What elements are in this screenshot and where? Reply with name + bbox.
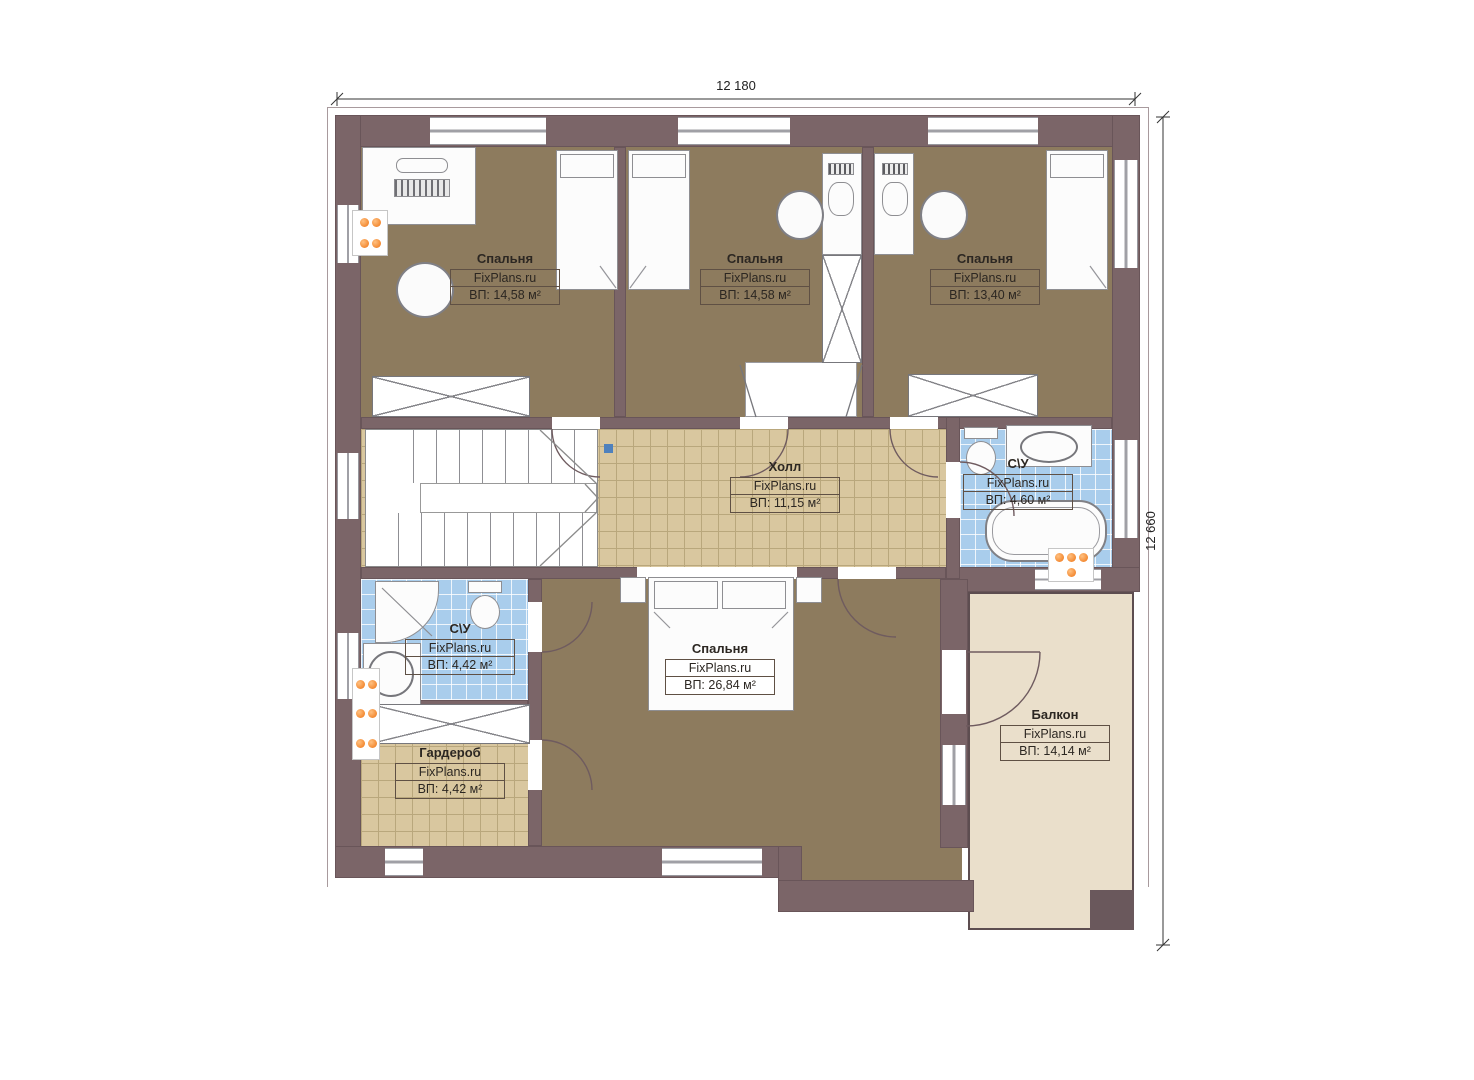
window-right-2 [1114,440,1138,538]
room-area: ВП: 11,15 м² [731,495,839,511]
door-niche-bedrooms-2-3 [745,362,857,417]
room-label-bathroom-right: С\У FixPlans.ru ВП: 4,60 м² [963,457,1073,510]
room-brand: FixPlans.ru [1001,726,1109,743]
room-brand: FixPlans.ru [396,764,504,781]
printer-tray-icon [394,179,450,197]
door-gap-bedroom-2 [740,417,788,429]
wall-bedroom2-3 [862,147,874,417]
door-gap-wardrobe [528,740,542,790]
room-brand: FixPlans.ru [931,270,1039,287]
door-gap-bathroom-right [946,462,960,518]
pillow-bedroom-3 [1050,154,1104,178]
window-top-2 [678,117,790,145]
pillow-bedroom-1 [560,154,614,178]
toilet-tank-right [964,427,998,439]
room-label-wardrobe: Гардероб FixPlans.ru ВП: 4,42 м² [395,746,505,799]
room-brand: FixPlans.ru [731,478,839,495]
radiator-wardrobe-wall [352,668,380,760]
pillow-master-left [654,581,718,609]
room-label-hall: Холл FixPlans.ru ВП: 11,15 м² [730,460,840,513]
door-gap-bedroom-3 [890,417,938,429]
room-area: ВП: 4,60 м² [964,492,1072,508]
staircase-treads-upper [413,430,597,483]
radiator-bathroom-right [1048,548,1094,582]
room-brand: FixPlans.ru [451,270,559,287]
nightstand-right [796,577,822,603]
balcony-corner-pier [1090,890,1134,930]
room-area: ВП: 14,58 м² [701,287,809,303]
room-label-balcony: Балкон FixPlans.ru ВП: 14,14 м² [1000,708,1110,761]
wall-hall-north [361,417,1112,429]
room-area: ВП: 13,40 м² [931,287,1039,303]
chair-bedroom-3 [920,190,968,240]
room-label-bedroom-2: Спальня FixPlans.ru ВП: 14,58 м² [700,252,810,305]
wardrobe-bedroom-1 [372,376,530,417]
room-name: Балкон [1000,708,1110,723]
keyboard-icon-bedroom-2 [828,182,854,216]
room-area: ВП: 14,14 м² [1001,743,1109,759]
window-bottom-1 [385,848,423,876]
room-brand: FixPlans.ru [701,270,809,287]
wardrobe-bedroom-3 [908,374,1038,417]
room-label-bedroom-master: Спальня FixPlans.ru ВП: 26,84 м² [665,642,775,695]
room-brand: FixPlans.ru [406,640,514,657]
chair-bedroom-1 [396,262,454,318]
room-label-bedroom-1: Спальня FixPlans.ru ВП: 14,58 м² [450,252,560,305]
pillow-master-right [722,581,786,609]
chair-bedroom-2 [776,190,824,240]
room-label-bedroom-3: Спальня FixPlans.ru ВП: 13,40 м² [930,252,1040,305]
window-top-1 [430,117,546,145]
room-area: ВП: 4,42 м² [406,657,514,673]
room-name: Холл [730,460,840,475]
staircase-marker [604,444,613,453]
wardrobe-closet [372,704,530,744]
printer-icon [396,158,448,173]
floor-bedroom-master-bump [800,846,962,882]
wardrobe-bedroom-2 [822,255,862,363]
room-name: Гардероб [395,746,505,761]
door-gap-balcony [942,650,966,714]
radiator-bedroom-1 [352,210,388,256]
computer-icon-bedroom-2 [828,163,854,175]
room-name: С\У [405,622,515,637]
floor-balcony [968,592,1134,930]
room-label-bathroom-left: С\У FixPlans.ru ВП: 4,42 м² [405,622,515,675]
room-area: ВП: 14,58 м² [451,287,559,303]
staircase-landing [420,483,597,513]
door-gap-master [838,567,896,579]
door-gap-bedroom-1 [552,417,600,429]
window-right-1 [1114,160,1138,268]
dimension-height-label: 12 660 [1144,481,1160,581]
window-top-3 [928,117,1038,145]
door-gap-bathroom-left [528,602,542,652]
window-master-balcony [942,745,966,805]
room-name: Спальня [665,642,775,657]
staircase-treads-lower [398,513,597,566]
pillow-bedroom-2 [632,154,686,178]
wall-exterior-bottom-mid [778,880,974,912]
room-brand: FixPlans.ru [964,475,1072,492]
room-brand: FixPlans.ru [666,660,774,677]
keyboard-icon-bedroom-3 [882,182,908,216]
nightstand-left [620,577,646,603]
dimension-width-label: 12 180 [686,79,786,92]
window-bottom-2 [662,848,762,876]
room-area: ВП: 26,84 м² [666,677,774,693]
computer-icon-bedroom-3 [882,163,908,175]
room-name: Спальня [700,252,810,267]
window-left-2 [337,453,359,519]
room-name: С\У [963,457,1073,472]
room-name: Спальня [930,252,1040,267]
room-area: ВП: 4,42 м² [396,781,504,797]
floor-plan-canvas: Спальня FixPlans.ru ВП: 14,58 м² Спальня… [0,0,1474,1080]
toilet-tank-left [468,581,502,593]
room-name: Спальня [450,252,560,267]
